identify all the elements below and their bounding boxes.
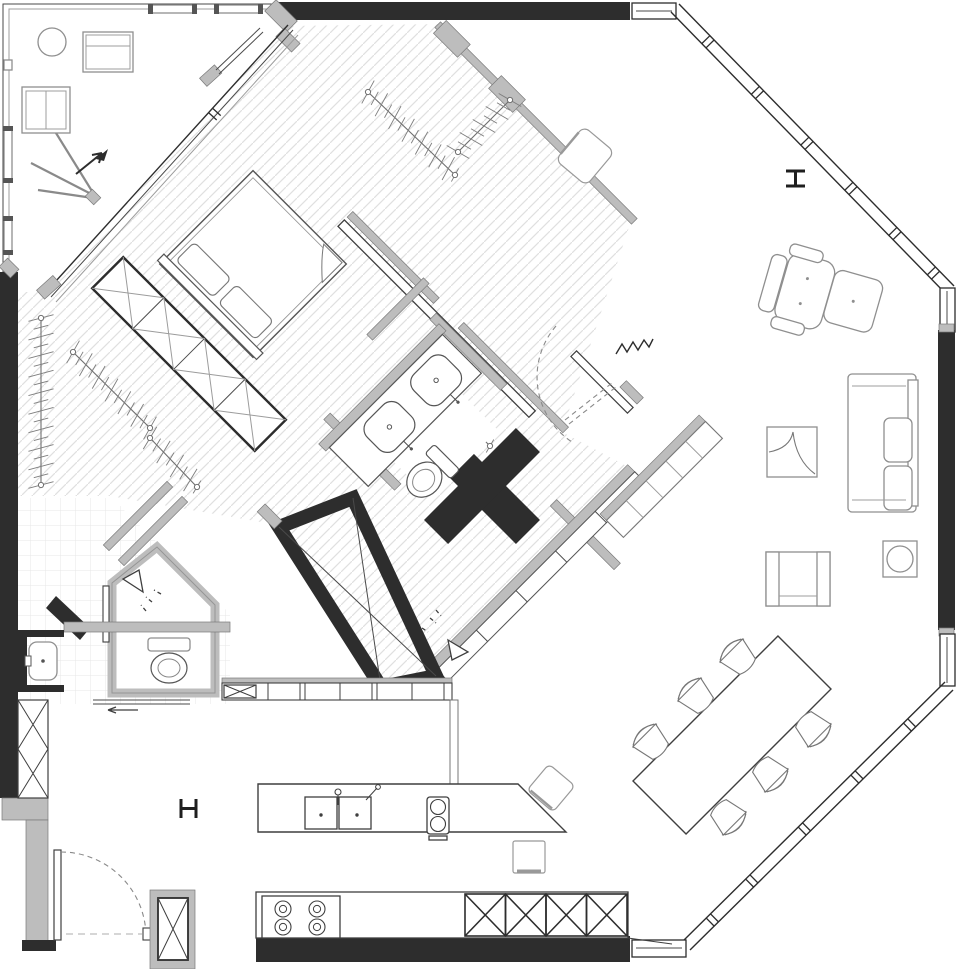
armchair — [766, 552, 830, 606]
steel-column-marker-right — [786, 171, 805, 186]
terrace-folding-door — [31, 133, 101, 205]
recliner — [753, 239, 839, 341]
bedroom-door-leaf — [571, 351, 633, 413]
sofa — [848, 374, 918, 512]
entry-door-swing-arc — [61, 852, 146, 938]
wc-toilet — [148, 638, 190, 683]
terrace-round-table — [38, 28, 66, 56]
bottom-black-wall — [256, 936, 630, 962]
left-black-wall — [0, 272, 18, 798]
back-counter — [256, 892, 672, 944]
entry-door-leaf — [54, 850, 61, 940]
tall-cabinet-edge — [450, 700, 458, 784]
kitchen-island — [258, 784, 566, 840]
cooktop-4-burner — [262, 896, 340, 938]
terrace-armchair — [22, 87, 70, 133]
island-stool-2 — [513, 841, 545, 873]
kitchen — [222, 678, 672, 944]
floor-plan-page: Apartment floor plan — [0, 0, 960, 969]
entry-tall-cabinet — [150, 890, 195, 969]
side-table — [883, 541, 917, 577]
pocket-door-spring — [616, 339, 653, 354]
utility-arrow — [108, 707, 138, 713]
terrace-loveseat — [83, 32, 133, 72]
dining-set — [628, 634, 836, 840]
right-wall-cap-top — [939, 324, 954, 332]
decor-square — [767, 427, 817, 477]
right-black-wall — [938, 330, 955, 630]
top-black-wall — [277, 2, 630, 20]
terrace-furniture — [22, 28, 133, 133]
floor-plan-canvas: Apartment floor plan — [0, 0, 960, 969]
island-hob — [427, 797, 449, 840]
hall-x-cabinets — [18, 700, 48, 798]
upper-cabinet-row — [222, 678, 452, 700]
entry-wall — [2, 798, 153, 951]
terrace-arrow — [76, 153, 102, 174]
steel-column-marker-left — [181, 799, 196, 818]
wc-door-leaf — [103, 586, 109, 642]
